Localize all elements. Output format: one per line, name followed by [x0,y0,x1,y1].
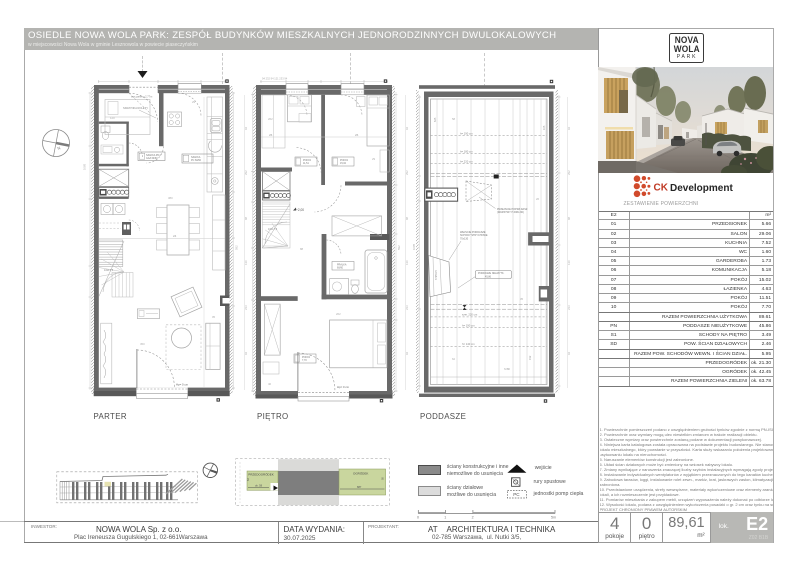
svg-text:450: 450 [140,342,145,346]
svg-text:26: 26 [536,197,540,201]
svg-text:88: 88 [567,216,571,220]
svg-text:292: 292 [405,170,409,175]
svg-text:94: 94 [405,126,409,130]
svg-text:292: 292 [244,170,248,175]
svg-text:94: 94 [244,351,248,355]
svg-text:94: 94 [567,126,571,130]
svg-text:0: 0 [417,516,419,520]
svg-text:94: 94 [405,351,409,355]
svg-text:88: 88 [405,216,409,220]
svg-text:62: 62 [452,357,456,361]
svg-text:262: 262 [268,117,273,121]
svg-text:130: 130 [244,260,248,265]
svg-text:CK: CK [654,183,669,194]
svg-text:88: 88 [300,247,304,251]
svg-text:2: 2 [472,516,474,520]
svg-text:262: 262 [336,312,341,316]
svg-text:29: 29 [192,100,196,104]
svg-text:5m: 5m [551,516,556,520]
svg-text:94: 94 [567,351,571,355]
svg-text:29: 29 [372,157,376,161]
svg-text:380: 380 [168,196,173,200]
svg-text:94: 94 [244,126,248,130]
svg-text:292: 292 [567,170,571,175]
svg-text:05: 05 [212,315,216,319]
svg-text:130: 130 [405,260,409,265]
svg-text:130: 130 [567,260,571,265]
svg-text:40: 40 [268,382,272,386]
svg-text:88: 88 [244,216,248,220]
svg-text:Development: Development [670,183,733,194]
svg-text:233: 233 [567,305,571,310]
svg-text:35: 35 [520,297,524,301]
svg-text:58: 58 [452,117,456,121]
svg-text:1: 1 [444,516,446,520]
svg-text:233: 233 [244,305,248,310]
svg-text:120: 120 [110,116,115,120]
svg-text:233: 233 [405,305,409,310]
